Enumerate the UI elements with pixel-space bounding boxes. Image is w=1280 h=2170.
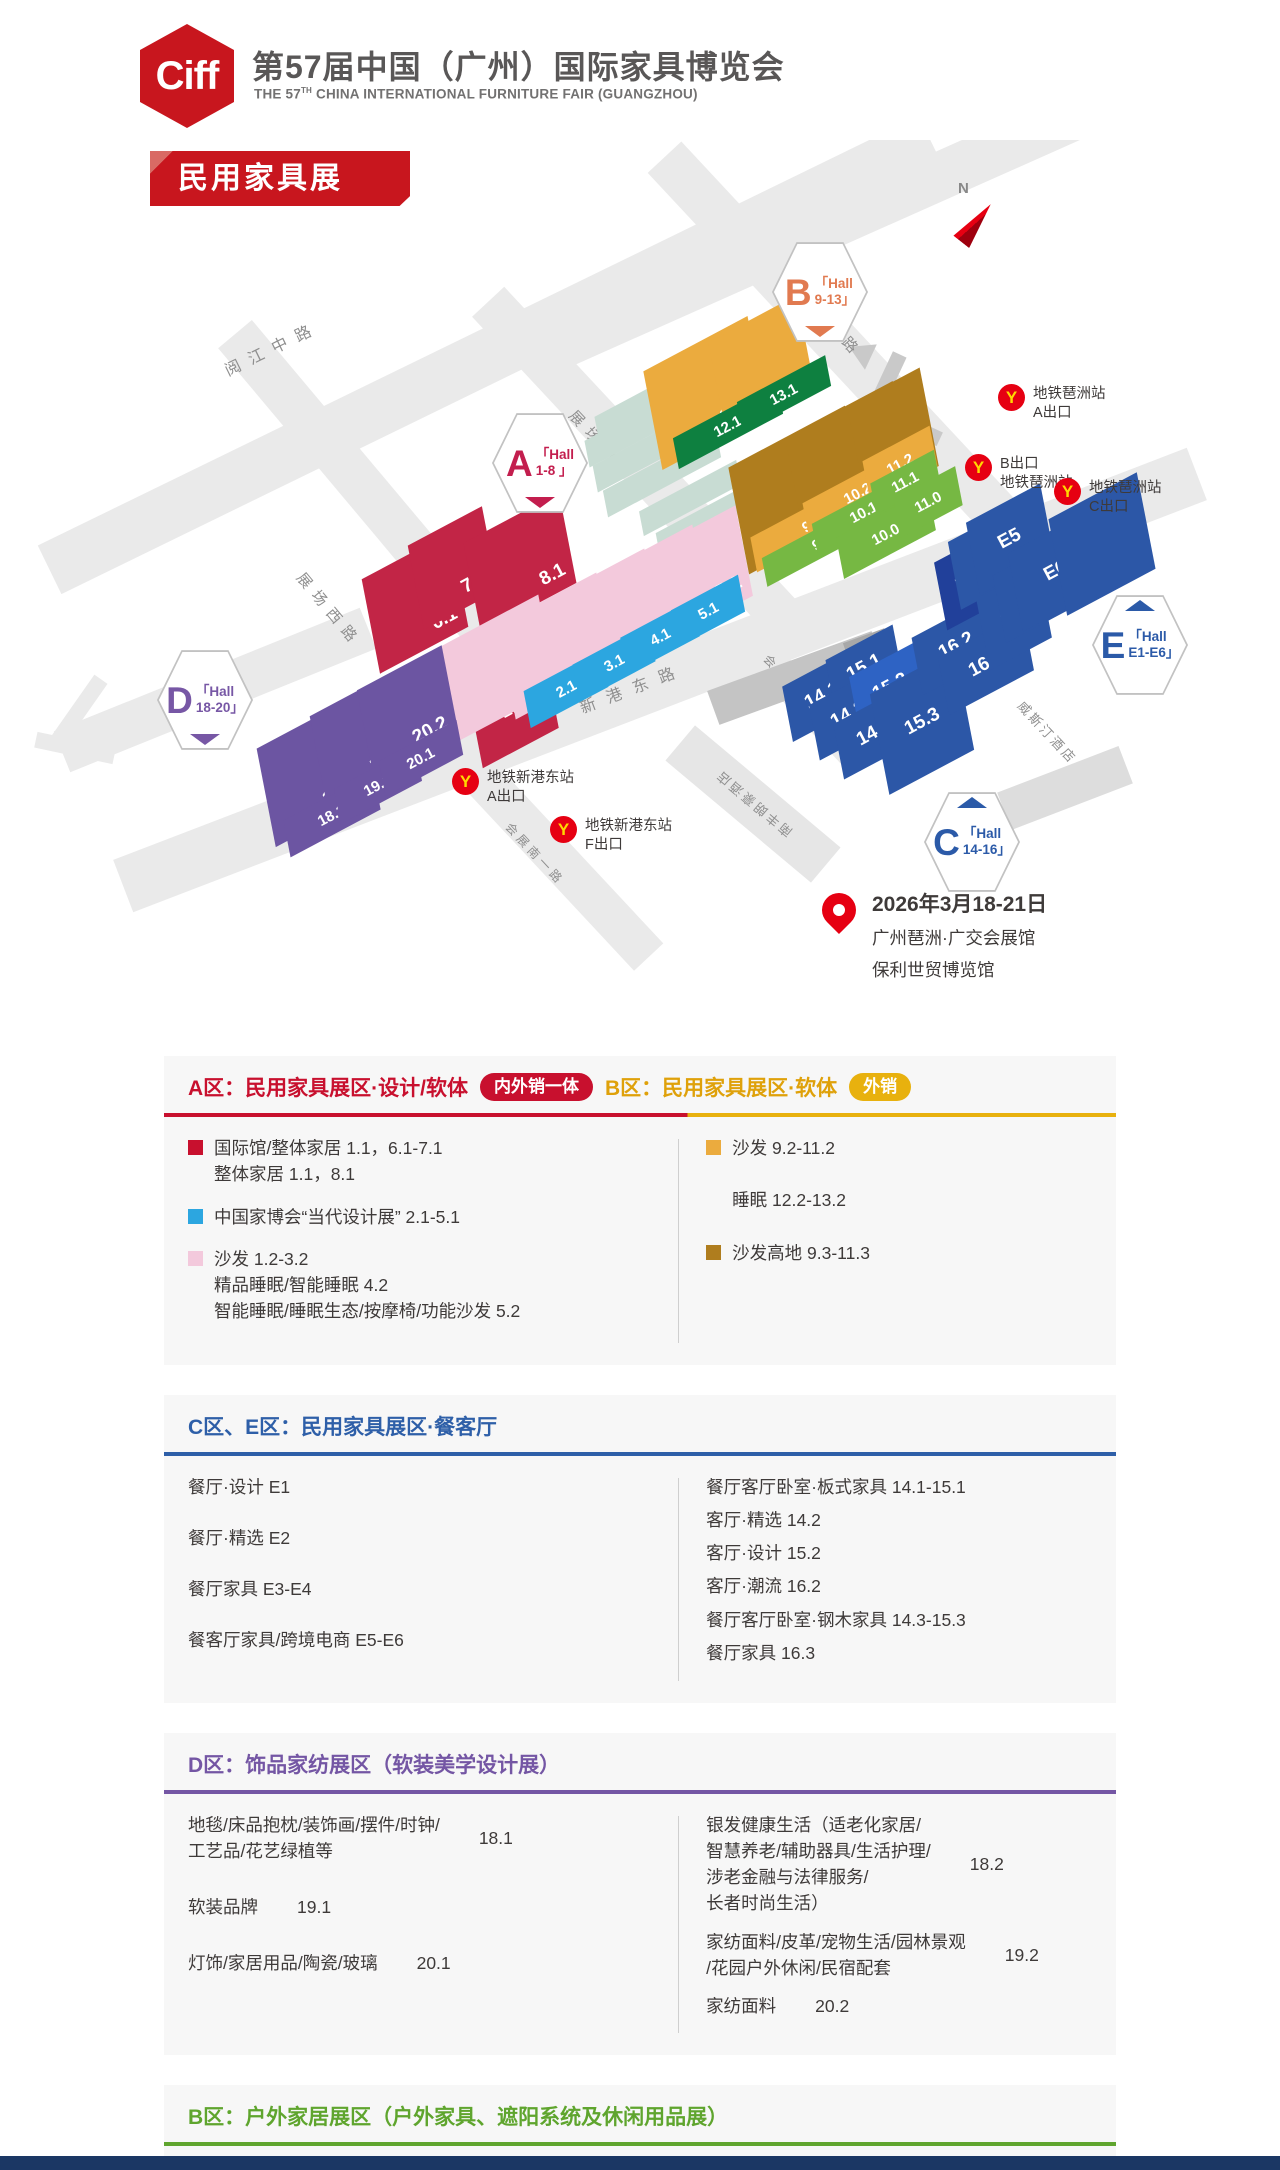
legend-item-text: 睡眠 12.2-13.2	[732, 1187, 846, 1213]
legend-column: 国际馆/整体家居 1.1，6.1-7.1整体家居 1.1，8.1中国家博会“当代…	[188, 1135, 676, 1341]
page-title: 第57届中国（广州）国际家具博览会	[252, 42, 785, 88]
hall-badge-b: B「Hall9-13」	[771, 240, 869, 344]
badge-line2: 1-8 」	[536, 463, 574, 479]
legend-item: 睡眠 12.2-13.2	[706, 1187, 1092, 1213]
legend-item-line: 中国家博会“当代设计展” 2.1-5.1	[214, 1204, 460, 1230]
legend-item-line: 地毯/床品抱枕/装饰画/摆件/时钟/	[188, 1812, 440, 1838]
event-venue-2: 保利世贸博览馆	[872, 957, 1047, 982]
legend-section-2: D区：饰品家纺展区（软装美学设计展）地毯/床品抱枕/装饰画/摆件/时钟/工艺品/…	[164, 1733, 1116, 2056]
compass: N	[952, 180, 986, 247]
legend-item-line: 涉老金融与法律服务/	[706, 1864, 931, 1890]
legend-section-header: C区、E区：民用家具展区·餐客厅	[164, 1395, 1116, 1452]
legend-item-number: 19.1	[297, 1894, 331, 1920]
legend-item-line: 睡眠 12.2-13.2	[732, 1187, 846, 1213]
legend-item-line: 智慧养老/辅助器具/生活护理/	[706, 1838, 931, 1864]
legend-column: 沙发 9.2-11.2睡眠 12.2-13.2沙发高地 9.3-11.3	[676, 1135, 1092, 1341]
metro-icon: Y	[998, 384, 1025, 411]
badge-lines: 「Hall1-8 」	[536, 447, 574, 479]
metro-icon: Y	[452, 768, 479, 795]
legend-item-line: 餐厅·设计 E1	[188, 1474, 290, 1500]
legend-item-line: 餐厅·精选 E2	[188, 1525, 290, 1551]
compass-arrow-icon	[953, 198, 998, 248]
legend-item-text: 餐厅客厅卧室·板式家具 14.1-15.1	[706, 1474, 966, 1500]
legend-item: 银发健康生活（适老化家居/智慧养老/辅助器具/生活护理/涉老金融与法律服务/长者…	[706, 1812, 1092, 1917]
legend-color-chip	[706, 1140, 721, 1155]
hall-block-label: 15.3	[901, 704, 944, 741]
legend-item-text: 餐厅家具 E3-E4	[188, 1576, 312, 1602]
legend-color-chip	[188, 1140, 203, 1155]
legend-column-divider	[678, 1139, 679, 1343]
legend-item-number: 20.2	[815, 1993, 849, 2019]
legend-item: 家纺面料20.2	[706, 1993, 1092, 2019]
legend-item: 餐厅·精选 E2	[188, 1525, 656, 1551]
legend-item-line: /花园户外休闲/民宿配套	[706, 1955, 966, 1981]
badge-lines: 「HallE1-E6」	[1128, 629, 1179, 661]
legend-item-line: 餐厅家具 E3-E4	[188, 1576, 312, 1602]
compass-n-label: N	[958, 180, 986, 197]
hall-badge-e: E「HallE1-E6」	[1091, 593, 1189, 697]
metro-icon: Y	[1054, 478, 1081, 505]
badge-lines: 「Hall18-20」	[196, 684, 244, 716]
legend-item-text: 餐客厅家具/跨境电商 E5-E6	[188, 1627, 404, 1653]
legend-item-text: 中国家博会“当代设计展” 2.1-5.1	[214, 1204, 460, 1230]
metro-icon: Y	[550, 816, 577, 843]
metro-exit: Y地铁新港东站F出口	[550, 816, 672, 855]
badge-line2: 9-13」	[815, 292, 856, 308]
legend-item-line: 智能睡眠/睡眠生态/按摩椅/功能沙发 5.2	[214, 1298, 520, 1324]
legend-item: 餐厅客厅卧室·钢木家具 14.3-15.3	[706, 1607, 1092, 1633]
legend-item-line: 餐客厅家具/跨境电商 E5-E6	[188, 1627, 404, 1653]
badge-pointer-icon	[525, 497, 555, 508]
hotel-label: 威斯汀酒店	[1014, 696, 1082, 767]
legend-item-line: 银发健康生活（适老化家居/	[706, 1812, 931, 1838]
legend-item-line: 餐厅家具 16.3	[706, 1640, 815, 1666]
metro-exit-line1: 地铁新港东站	[585, 817, 672, 836]
legend-item: 餐客厅家具/跨境电商 E5-E6	[188, 1627, 656, 1653]
legend-item-text: 餐厅·精选 E2	[188, 1525, 290, 1551]
legend-column: 银发健康生活（适老化家居/智慧养老/辅助器具/生活护理/涉老金融与法律服务/长者…	[676, 1812, 1092, 2032]
legend-item-text: 餐厅·设计 E1	[188, 1474, 290, 1500]
metro-exit: Y地铁琶洲站A出口	[998, 384, 1106, 423]
metro-exit-line1: 地铁琶洲站	[1089, 479, 1162, 498]
legend-item-text: 家纺面料/皮革/宠物生活/园林景观/花园户外休闲/民宿配套	[706, 1929, 966, 1982]
ciff-logo: Ciff	[140, 24, 234, 128]
legend-item-number: 19.2	[1005, 1942, 1039, 1968]
legend-item-line: 国际馆/整体家居 1.1，6.1-7.1	[214, 1135, 443, 1161]
hall-block-label: 11.0	[911, 488, 944, 516]
legend-item: 地毯/床品抱枕/装饰画/摆件/时钟/工艺品/花艺绿植等18.1	[188, 1812, 656, 1865]
legend-item-text: 灯饰/家居用品/陶瓷/玻璃	[188, 1950, 378, 1976]
legend-item: 客厅·设计 15.2	[706, 1540, 1092, 1566]
metro-exit-label: 地铁琶洲站A出口	[1033, 384, 1106, 423]
metro-exit-label: 地铁琶洲站C出口	[1089, 478, 1162, 517]
badge-line2: E1-E6」	[1128, 645, 1179, 661]
badge-line1: 「Hall	[196, 684, 244, 700]
legend-item-line: 沙发 1.2-3.2	[214, 1246, 520, 1272]
hall-block-label: 13.1	[767, 380, 801, 409]
legend-section-header: D区：饰品家纺展区（软装美学设计展）	[164, 1733, 1116, 1790]
badge-letter: C	[933, 824, 960, 861]
legend-item-text: 客厅·精选 14.2	[706, 1507, 821, 1533]
legend-item: 餐厅·设计 E1	[188, 1474, 656, 1500]
legend-item-text: 沙发 9.2-11.2	[732, 1135, 835, 1161]
badge-line1: 「Hall	[815, 276, 856, 292]
legend-item: 客厅·潮流 16.2	[706, 1573, 1092, 1599]
legend-item: 软装品牌19.1	[188, 1894, 656, 1920]
legend-item-text: 银发健康生活（适老化家居/智慧养老/辅助器具/生活护理/涉老金融与法律服务/长者…	[706, 1812, 931, 1917]
legend-item-text: 国际馆/整体家居 1.1，6.1-7.1整体家居 1.1，8.1	[214, 1135, 443, 1188]
legend-column: 餐厅·设计 E1餐厅·精选 E2餐厅家具 E3-E4餐客厅家具/跨境电商 E5-…	[188, 1474, 676, 1679]
subtitle-sup: TH	[301, 86, 312, 95]
legend-item-line: 客厅·设计 15.2	[706, 1540, 821, 1566]
hall-block-label: 8.1	[536, 559, 570, 591]
legend-item: 沙发高地 9.3-11.3	[706, 1240, 1092, 1266]
legend-item-line: 客厅·潮流 16.2	[706, 1573, 821, 1599]
legend-item-text: 沙发高地 9.3-11.3	[732, 1240, 870, 1266]
badge-line1: 「Hall	[536, 447, 574, 463]
hall-block-label: 20.1	[404, 744, 438, 773]
badge-letter: A	[506, 445, 533, 482]
legend-section-header: B区：户外家居展区（户外家具、遮阳系统及休闲用品展）	[164, 2085, 1116, 2142]
legend-item: 餐厅家具 E3-E4	[188, 1576, 656, 1602]
legend-item-line: 沙发高地 9.3-11.3	[732, 1240, 870, 1266]
legend-column-divider	[678, 1478, 679, 1681]
badge-lines: 「Hall9-13」	[815, 276, 856, 308]
legend-section-body: 国际馆/整体家居 1.1，6.1-7.1整体家居 1.1，8.1中国家博会“当代…	[164, 1117, 1116, 1365]
metro-exit-line1: 地铁新港东站	[487, 769, 574, 788]
legend-item-text: 餐厅客厅卧室·钢木家具 14.3-15.3	[706, 1607, 966, 1633]
badge-pointer-icon	[190, 734, 220, 745]
legend-item-number: 20.1	[417, 1950, 451, 1976]
hall-block-label: 4.1	[647, 625, 673, 650]
legend-header-title: B区：户外家居展区（户外家具、遮阳系统及休闲用品展）	[188, 2101, 728, 2131]
legend-item-line: 精品睡眠/智能睡眠 4.2	[214, 1272, 520, 1298]
legend-section-header: A区：民用家具展区·设计/软体内外销一体B区：民用家具展区·软体外销	[164, 1056, 1116, 1113]
legend-section-body: 餐厅·设计 E1餐厅·精选 E2餐厅家具 E3-E4餐客厅家具/跨境电商 E5-…	[164, 1456, 1116, 1703]
badge-line1: 「Hall	[963, 826, 1011, 842]
legend-item: 家纺面料/皮革/宠物生活/园林景观/花园户外休闲/民宿配套19.2	[706, 1929, 1092, 1982]
badge-lines: 「Hall14-16」	[963, 826, 1011, 858]
badge-letter: B	[785, 274, 812, 311]
subtitle-post: CHINA INTERNATIONAL FURNITURE FAIR (GUAN…	[312, 87, 698, 102]
legend-column: 餐厅客厅卧室·板式家具 14.1-15.1客厅·精选 14.2客厅·设计 15.…	[676, 1474, 1092, 1679]
legend-header-title: C区、E区：民用家具展区·餐客厅	[188, 1411, 497, 1441]
legend-item: 国际馆/整体家居 1.1，6.1-7.1整体家居 1.1，8.1	[188, 1135, 656, 1188]
legend-header-pill: 外销	[849, 1073, 911, 1101]
legend-section-0: A区：民用家具展区·设计/软体内外销一体B区：民用家具展区·软体外销国际馆/整体…	[164, 1056, 1116, 1365]
event-venue-1: 广州琶洲·广交会展馆	[872, 925, 1047, 950]
legend-item: 沙发 9.2-11.2	[706, 1135, 1092, 1161]
page: Ciff 第57届中国（广州）国际家具博览会 THE 57TH CHINA IN…	[0, 0, 1280, 2170]
legend-column-divider	[678, 1816, 679, 2034]
venue-map: N 2026年3月18-21日 广州琶洲·广交会展馆 保利世贸博览馆 阅江中路新…	[0, 140, 1280, 1020]
metro-exit-line2: C出口	[1089, 498, 1162, 517]
badge-pointer-icon	[957, 797, 987, 808]
badge-pointer-icon	[1125, 600, 1155, 611]
legend-item-line: 餐厅客厅卧室·板式家具 14.1-15.1	[706, 1474, 966, 1500]
metro-exit-line1: B出口	[1000, 455, 1073, 474]
legend-item-text: 客厅·潮流 16.2	[706, 1573, 821, 1599]
legend-item: 沙发 1.2-3.2精品睡眠/智能睡眠 4.2智能睡眠/睡眠生态/按摩椅/功能沙…	[188, 1246, 656, 1325]
legend-item-line: 灯饰/家居用品/陶瓷/玻璃	[188, 1950, 378, 1976]
legend-item-line: 工艺品/花艺绿植等	[188, 1838, 440, 1864]
legend-item: 餐厅家具 16.3	[706, 1640, 1092, 1666]
metro-exit-line2: A出口	[487, 788, 574, 807]
event-info-text: 2026年3月18-21日 广州琶洲·广交会展馆 保利世贸博览馆	[872, 888, 1047, 982]
legend-item-line: 长者时尚生活）	[706, 1890, 931, 1916]
legend-header-title: B区：民用家具展区·软体	[605, 1072, 837, 1102]
hall-block-label: 5.1	[695, 599, 721, 624]
badge-line2: 14-16」	[963, 842, 1011, 858]
legend-column: 地毯/床品抱枕/装饰画/摆件/时钟/工艺品/花艺绿植等18.1软装品牌19.1灯…	[188, 1812, 676, 2032]
footer-bar	[0, 2156, 1280, 2170]
legend-item-text: 地毯/床品抱枕/装饰画/摆件/时钟/工艺品/花艺绿植等	[188, 1812, 440, 1865]
legend-item-line: 客厅·精选 14.2	[706, 1507, 821, 1533]
legend-header-title: A区：民用家具展区·设计/软体	[188, 1072, 468, 1102]
legend-header-pill: 内外销一体	[480, 1073, 593, 1101]
legend-color-chip	[188, 1209, 203, 1224]
legend-item-line: 家纺面料/皮革/宠物生活/园林景观	[706, 1929, 966, 1955]
legend-item-line: 整体家居 1.1，8.1	[214, 1161, 443, 1187]
legend-item-text: 沙发 1.2-3.2精品睡眠/智能睡眠 4.2智能睡眠/睡眠生态/按摩椅/功能沙…	[214, 1246, 520, 1325]
metro-exit: Y地铁新港东站A出口	[452, 768, 574, 807]
event-info: 2026年3月18-21日 广州琶洲·广交会展馆 保利世贸博览馆	[822, 888, 1047, 982]
legend-section-body: 地毯/床品抱枕/装饰画/摆件/时钟/工艺品/花艺绿植等18.1软装品牌19.1灯…	[164, 1794, 1116, 2056]
legend-item-number: 18.2	[970, 1851, 1004, 1877]
legend-item: 灯饰/家居用品/陶瓷/玻璃20.1	[188, 1950, 656, 1976]
subtitle-pre: THE 57	[254, 87, 301, 102]
legend-color-chip	[706, 1245, 721, 1260]
metro-exit-label: 地铁新港东站A出口	[487, 768, 574, 807]
legend-item-line: 软装品牌	[188, 1894, 258, 1920]
badge-line1: 「Hall	[1128, 629, 1179, 645]
legend-item: 客厅·精选 14.2	[706, 1507, 1092, 1533]
badge-pointer-icon	[805, 326, 835, 337]
metro-exit-line2: A出口	[1033, 404, 1106, 423]
badge-line2: 18-20」	[196, 700, 244, 716]
metro-icon: Y	[965, 454, 992, 481]
legend-item-text: 餐厅家具 16.3	[706, 1640, 815, 1666]
badge-letter: D	[166, 682, 193, 719]
ciff-logo-text: Ciff	[156, 54, 219, 99]
page-subtitle: THE 57TH CHINA INTERNATIONAL FURNITURE F…	[254, 86, 698, 102]
legend-item-line: 餐厅客厅卧室·钢木家具 14.3-15.3	[706, 1607, 966, 1633]
legend-item-text: 家纺面料	[706, 1993, 776, 2019]
legend-header-title: D区：饰品家纺展区（软装美学设计展）	[188, 1749, 560, 1779]
legend-item-text: 客厅·设计 15.2	[706, 1540, 821, 1566]
hall-badge-d: D「Hall18-20」	[156, 648, 254, 752]
legend-color-chip	[188, 1251, 203, 1266]
hall-badge-a: A「Hall1-8 」	[491, 411, 589, 515]
legend-item: 餐厅客厅卧室·板式家具 14.1-15.1	[706, 1474, 1092, 1500]
metro-exit: Y地铁琶洲站C出口	[1054, 478, 1162, 517]
legend-section-1: C区、E区：民用家具展区·餐客厅餐厅·设计 E1餐厅·精选 E2餐厅家具 E3-…	[164, 1395, 1116, 1703]
hall-badge-c: C「Hall14-16」	[923, 790, 1021, 894]
legend: A区：民用家具展区·设计/软体内外销一体B区：民用家具展区·软体外销国际馆/整体…	[164, 1056, 1116, 2170]
legend-item-number: 18.1	[479, 1825, 513, 1851]
legend-item-line: 沙发 9.2-11.2	[732, 1135, 835, 1161]
metro-exit-line1: 地铁琶洲站	[1033, 385, 1106, 404]
legend-item: 中国家博会“当代设计展” 2.1-5.1	[188, 1204, 656, 1230]
metro-exit-line2: F出口	[585, 836, 672, 855]
legend-item-line: 家纺面料	[706, 1993, 776, 2019]
badge-letter: E	[1101, 627, 1126, 664]
location-pin-icon	[815, 886, 863, 934]
legend-item-text: 软装品牌	[188, 1894, 258, 1920]
metro-exit-label: 地铁新港东站F出口	[585, 816, 672, 855]
event-date: 2026年3月18-21日	[872, 888, 1047, 918]
